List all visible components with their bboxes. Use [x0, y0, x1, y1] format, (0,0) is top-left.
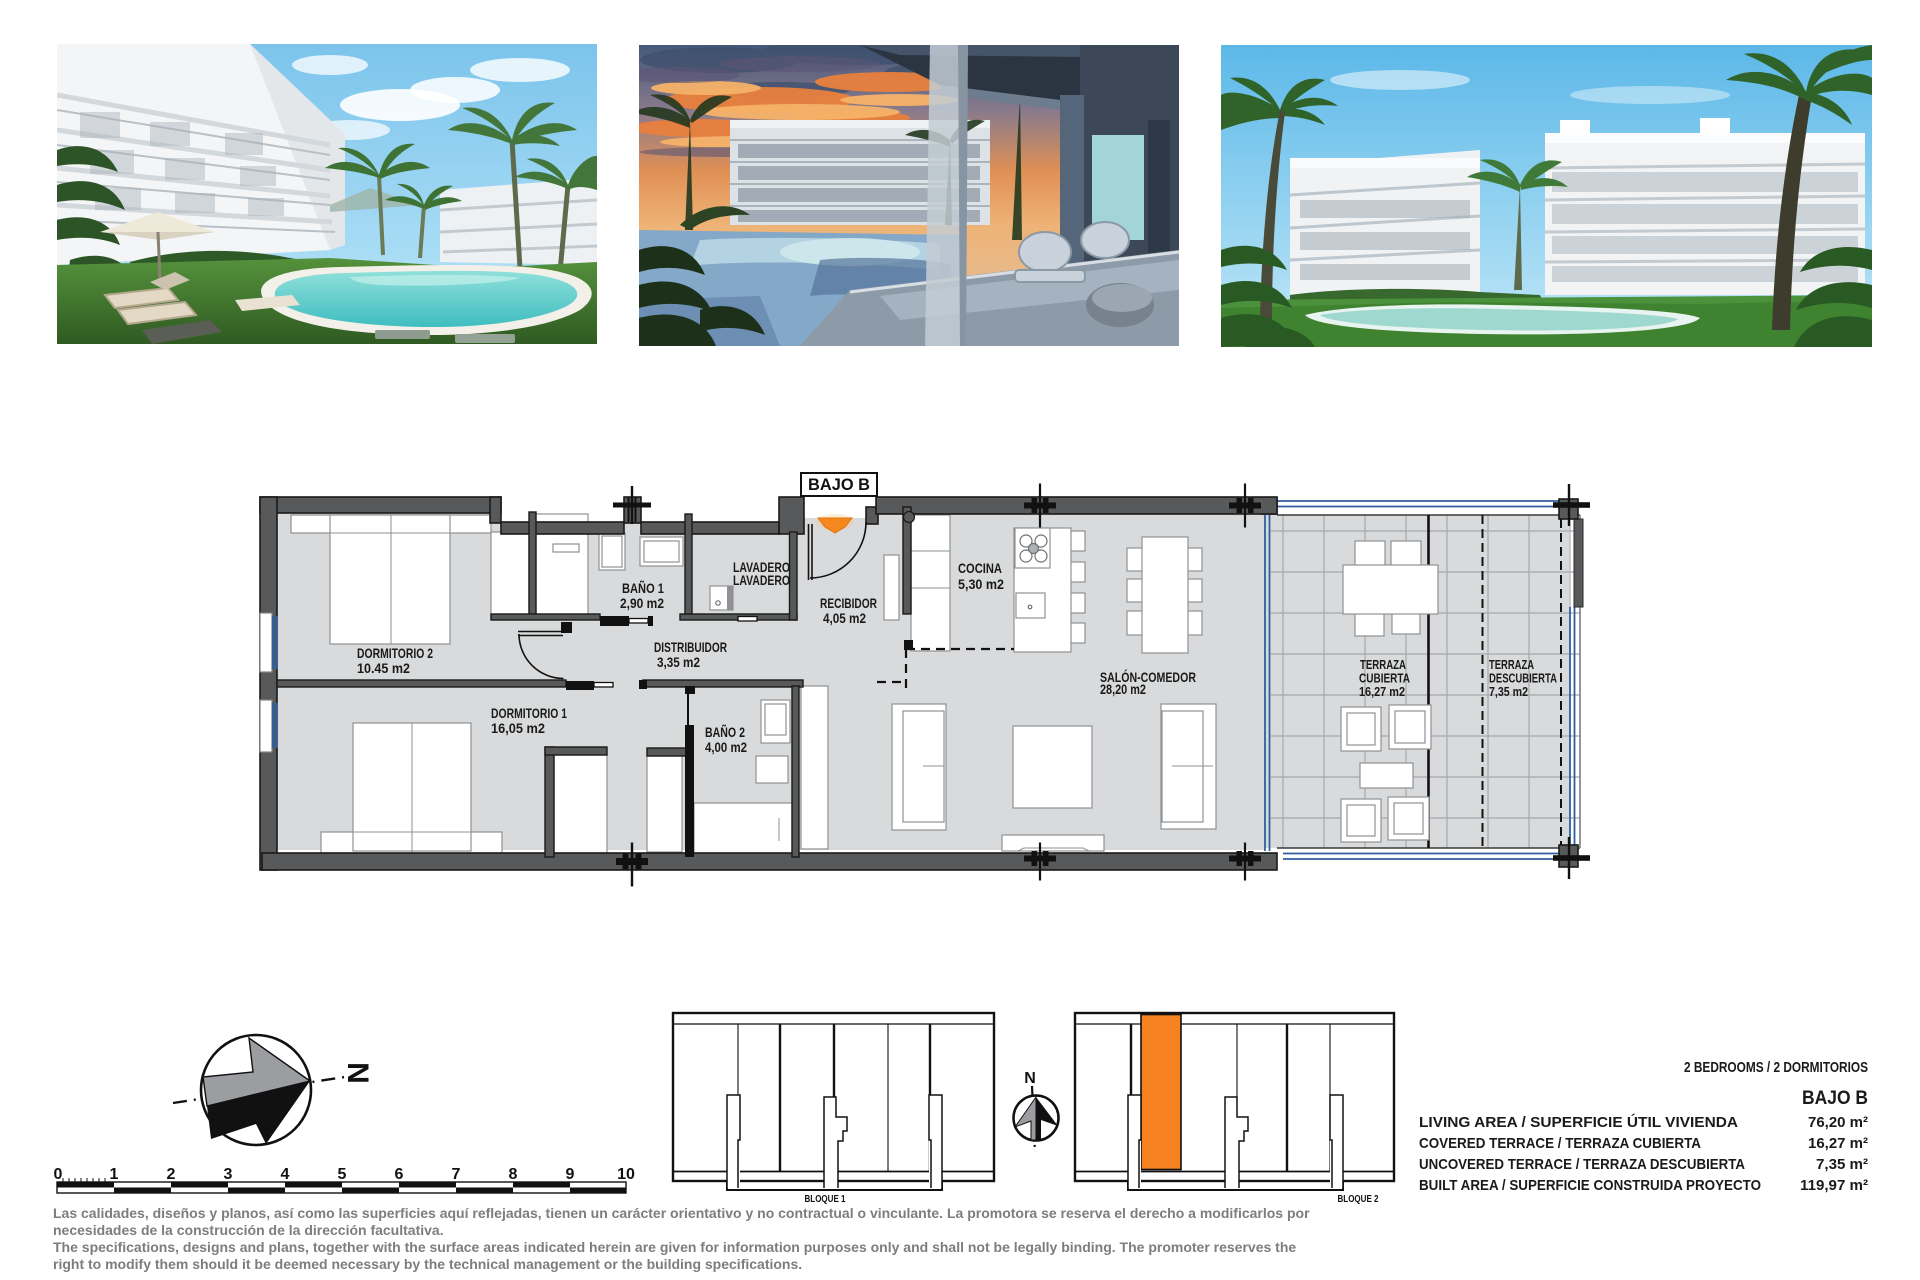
svg-text:16,27 m²: 16,27 m²: [1808, 1135, 1868, 1152]
svg-text:UNCOVERED TERRACE / TERRAZA DE: UNCOVERED TERRACE / TERRAZA DESCUBIERTA: [1419, 1156, 1745, 1173]
svg-text:RECIBIDOR: RECIBIDOR: [820, 595, 877, 611]
svg-text:BAJO B: BAJO B: [1802, 1088, 1868, 1109]
svg-text:7: 7: [452, 1166, 461, 1183]
svg-text:The specifications, designs an: The specifications, designs and plans, t…: [53, 1239, 1296, 1255]
svg-text:BLOQUE 2: BLOQUE 2: [1338, 1193, 1379, 1205]
svg-text:6: 6: [395, 1166, 404, 1183]
svg-text:BUILT AREA / SUPERFICIE CONSTR: BUILT AREA / SUPERFICIE CONSTRUIDA PROYE…: [1419, 1177, 1761, 1194]
svg-text:3: 3: [224, 1166, 233, 1183]
svg-text:0: 0: [54, 1166, 63, 1183]
svg-text:N: N: [1024, 1070, 1036, 1087]
svg-text:COVERED TERRACE / TERRAZA CUBI: COVERED TERRACE / TERRAZA CUBIERTA: [1419, 1135, 1701, 1152]
svg-text:4,00 m2: 4,00 m2: [705, 739, 747, 755]
svg-text:7,35 m2: 7,35 m2: [1489, 684, 1528, 699]
svg-text:10.45 m2: 10.45 m2: [357, 660, 410, 676]
svg-text:BAJO B: BAJO B: [808, 475, 870, 494]
svg-text:LIVING AREA / SUPERFICIE ÚTIL: LIVING AREA / SUPERFICIE ÚTIL VIVIENDA: [1419, 1113, 1738, 1131]
svg-text:4,05 m2: 4,05 m2: [823, 610, 866, 626]
svg-text:119,97 m²: 119,97 m²: [1800, 1177, 1868, 1194]
svg-text:right to modify them should it: right to modify them should it be deemed…: [53, 1256, 802, 1272]
svg-text:9: 9: [566, 1166, 575, 1183]
svg-text:2 BEDROOMS / 2 DORMITORIOS: 2 BEDROOMS / 2 DORMITORIOS: [1684, 1059, 1868, 1076]
svg-text:8: 8: [509, 1166, 518, 1183]
svg-text:4: 4: [281, 1166, 290, 1183]
svg-text:10: 10: [617, 1166, 635, 1183]
svg-text:7,35 m²: 7,35 m²: [1816, 1156, 1868, 1173]
svg-text:necesidades de la construcción: necesidades de la construcción de la dir…: [53, 1222, 444, 1238]
svg-text:16,05 m2: 16,05 m2: [491, 720, 545, 736]
svg-text:LAVADERO: LAVADERO: [733, 572, 790, 588]
svg-text:28,20 m2: 28,20 m2: [1100, 681, 1146, 697]
svg-text:N: N: [341, 1062, 374, 1084]
svg-text:DORMITORIO 1: DORMITORIO 1: [491, 705, 567, 721]
svg-text:76,20 m²: 76,20 m²: [1808, 1114, 1868, 1131]
svg-text:1: 1: [110, 1166, 119, 1183]
svg-text:Las calidades, diseños y plano: Las calidades, diseños y planos, así com…: [53, 1205, 1310, 1221]
svg-text:DISTRIBUIDOR: DISTRIBUIDOR: [654, 639, 727, 655]
svg-text:BAÑO 1: BAÑO 1: [622, 579, 664, 596]
svg-text:3,35 m2: 3,35 m2: [657, 654, 700, 670]
svg-text:2: 2: [167, 1166, 176, 1183]
svg-text:DORMITORIO 2: DORMITORIO 2: [357, 645, 433, 661]
svg-text:5,30 m2: 5,30 m2: [958, 576, 1004, 592]
svg-text:16,27 m2: 16,27 m2: [1359, 684, 1405, 699]
svg-text:BLOQUE 1: BLOQUE 1: [805, 1193, 846, 1205]
svg-text:5: 5: [338, 1166, 347, 1183]
svg-text:COCINA: COCINA: [958, 560, 1002, 576]
svg-text:2,90 m2: 2,90 m2: [620, 595, 664, 611]
svg-text:BAÑO 2: BAÑO 2: [705, 723, 745, 740]
